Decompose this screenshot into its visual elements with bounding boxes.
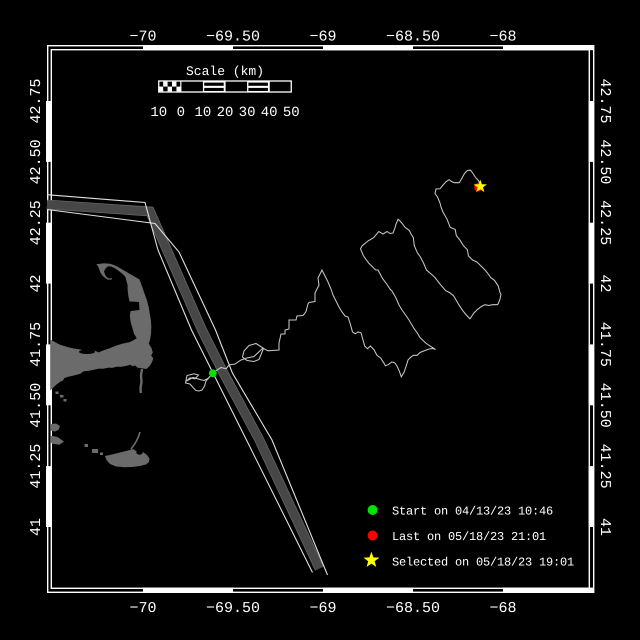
svg-text:−70: −70	[129, 600, 156, 617]
svg-text:41: 41	[28, 518, 45, 536]
svg-text:Last on 05/18/23 21:01: Last on 05/18/23 21:01	[392, 530, 546, 544]
svg-text:42.50: 42.50	[596, 139, 613, 184]
svg-text:42: 42	[596, 274, 613, 292]
svg-text:42.75: 42.75	[596, 78, 613, 123]
svg-text:30: 30	[239, 105, 256, 121]
svg-text:42.25: 42.25	[28, 200, 45, 245]
svg-text:42.50: 42.50	[28, 139, 45, 184]
svg-text:41: 41	[596, 518, 613, 536]
svg-text:42: 42	[28, 274, 45, 292]
svg-text:−69.50: −69.50	[206, 29, 260, 46]
svg-text:−69: −69	[309, 29, 336, 46]
svg-text:−68.50: −68.50	[386, 600, 440, 617]
svg-text:Scale (km): Scale (km)	[186, 64, 264, 79]
svg-text:Selected on 05/18/23 19:01: Selected on 05/18/23 19:01	[392, 556, 574, 570]
svg-text:41.75: 41.75	[596, 322, 613, 367]
svg-text:10: 10	[150, 105, 167, 121]
svg-text:41.50: 41.50	[596, 383, 613, 428]
svg-text:−68.50: −68.50	[386, 29, 440, 46]
svg-text:−68: −68	[489, 29, 516, 46]
svg-text:0: 0	[177, 105, 185, 121]
svg-text:−69: −69	[309, 600, 336, 617]
svg-text:20: 20	[217, 105, 234, 121]
svg-text:40: 40	[261, 105, 278, 121]
svg-text:41.25: 41.25	[28, 444, 45, 489]
svg-text:42.75: 42.75	[28, 78, 45, 123]
svg-text:−68: −68	[489, 600, 516, 617]
svg-text:10: 10	[195, 105, 212, 121]
svg-text:50: 50	[283, 105, 300, 121]
svg-text:41.50: 41.50	[28, 383, 45, 428]
svg-text:41.25: 41.25	[596, 444, 613, 489]
svg-text:Start on 04/13/23 10:46: Start on 04/13/23 10:46	[392, 505, 553, 519]
svg-text:−69.50: −69.50	[206, 600, 260, 617]
svg-text:−70: −70	[129, 29, 156, 46]
svg-text:42.25: 42.25	[596, 200, 613, 245]
svg-text:41.75: 41.75	[28, 322, 45, 367]
